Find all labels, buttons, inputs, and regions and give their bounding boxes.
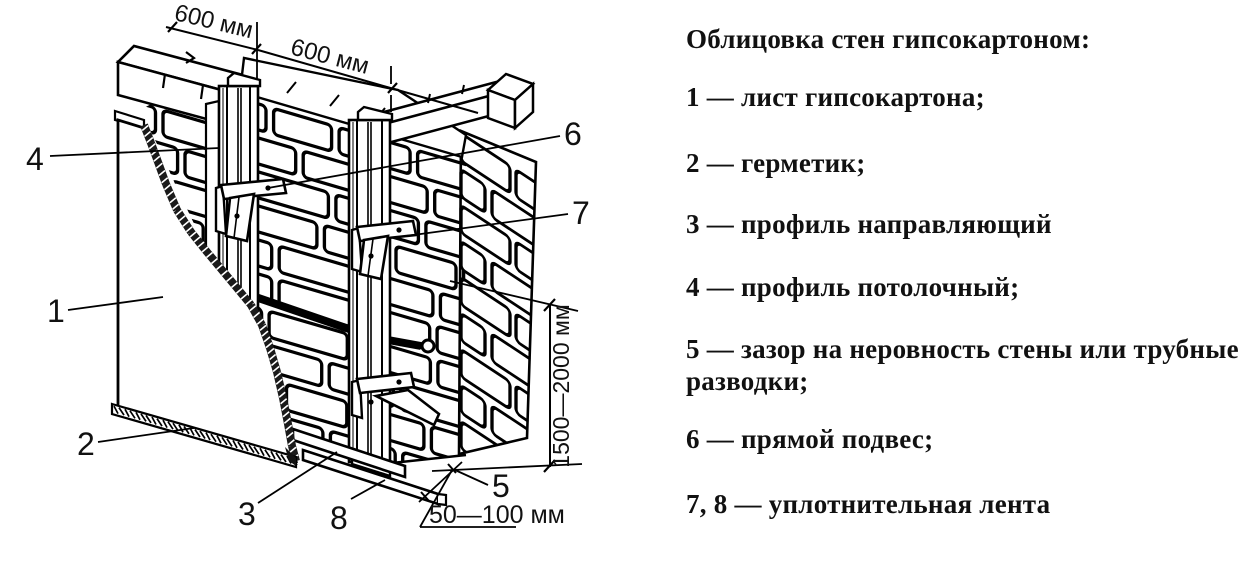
svg-text:8: 8 (330, 500, 348, 536)
svg-text:3: 3 (238, 496, 256, 532)
svg-text:6: 6 (564, 116, 582, 152)
svg-text:50—100 мм: 50—100 мм (429, 501, 565, 529)
svg-text:4: 4 (26, 141, 44, 177)
svg-text:2: 2 (77, 426, 95, 462)
svg-text:7: 7 (572, 195, 590, 231)
svg-text:5: 5 (492, 468, 510, 504)
svg-text:1500—2000 мм: 1500—2000 мм (548, 304, 574, 467)
svg-text:1: 1 (47, 293, 65, 329)
svg-text:600 мм: 600 мм (172, 0, 256, 44)
